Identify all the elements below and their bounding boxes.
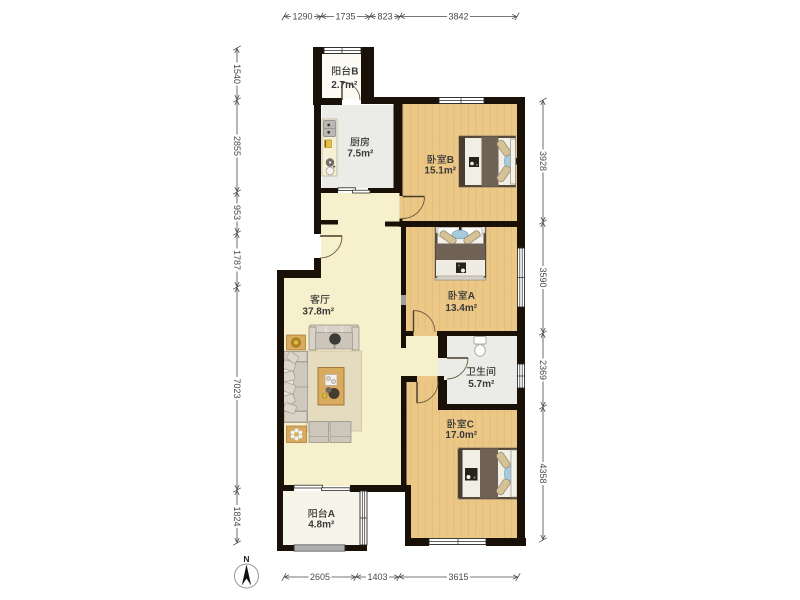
- svg-text:2369: 2369: [538, 360, 548, 380]
- svg-text:7023: 7023: [232, 378, 242, 398]
- svg-text:3615: 3615: [448, 572, 468, 582]
- svg-text:3842: 3842: [448, 12, 468, 22]
- svg-text:15.1m²: 15.1m²: [424, 166, 456, 177]
- svg-text:37.8m²: 37.8m²: [302, 307, 334, 318]
- svg-text:953: 953: [232, 205, 242, 220]
- svg-text:823: 823: [377, 12, 392, 22]
- svg-text:13.4m²: 13.4m²: [445, 303, 477, 314]
- svg-text:5.7m²: 5.7m²: [468, 379, 495, 390]
- svg-text:C: C: [467, 420, 474, 431]
- svg-text:4.8m²: 4.8m²: [308, 520, 335, 531]
- svg-text:3928: 3928: [538, 151, 548, 171]
- svg-text:B: B: [351, 67, 358, 78]
- svg-text:1824: 1824: [232, 506, 242, 526]
- svg-text:1403: 1403: [367, 572, 387, 582]
- svg-text:A: A: [328, 509, 335, 520]
- svg-text:N: N: [243, 554, 249, 564]
- svg-text:2605: 2605: [310, 572, 330, 582]
- svg-text:2.7m²: 2.7m²: [331, 80, 358, 91]
- svg-text:1290: 1290: [292, 12, 312, 22]
- svg-text:1540: 1540: [232, 64, 242, 84]
- svg-text:17.0m²: 17.0m²: [445, 430, 477, 441]
- svg-text:A: A: [468, 291, 475, 302]
- svg-text:1735: 1735: [335, 12, 355, 22]
- svg-text:B: B: [447, 155, 454, 166]
- svg-text:3590: 3590: [538, 267, 548, 287]
- svg-text:1787: 1787: [232, 250, 242, 270]
- svg-text:2855: 2855: [232, 136, 242, 156]
- svg-text:7.5m²: 7.5m²: [347, 149, 374, 160]
- svg-text:4358: 4358: [538, 463, 548, 483]
